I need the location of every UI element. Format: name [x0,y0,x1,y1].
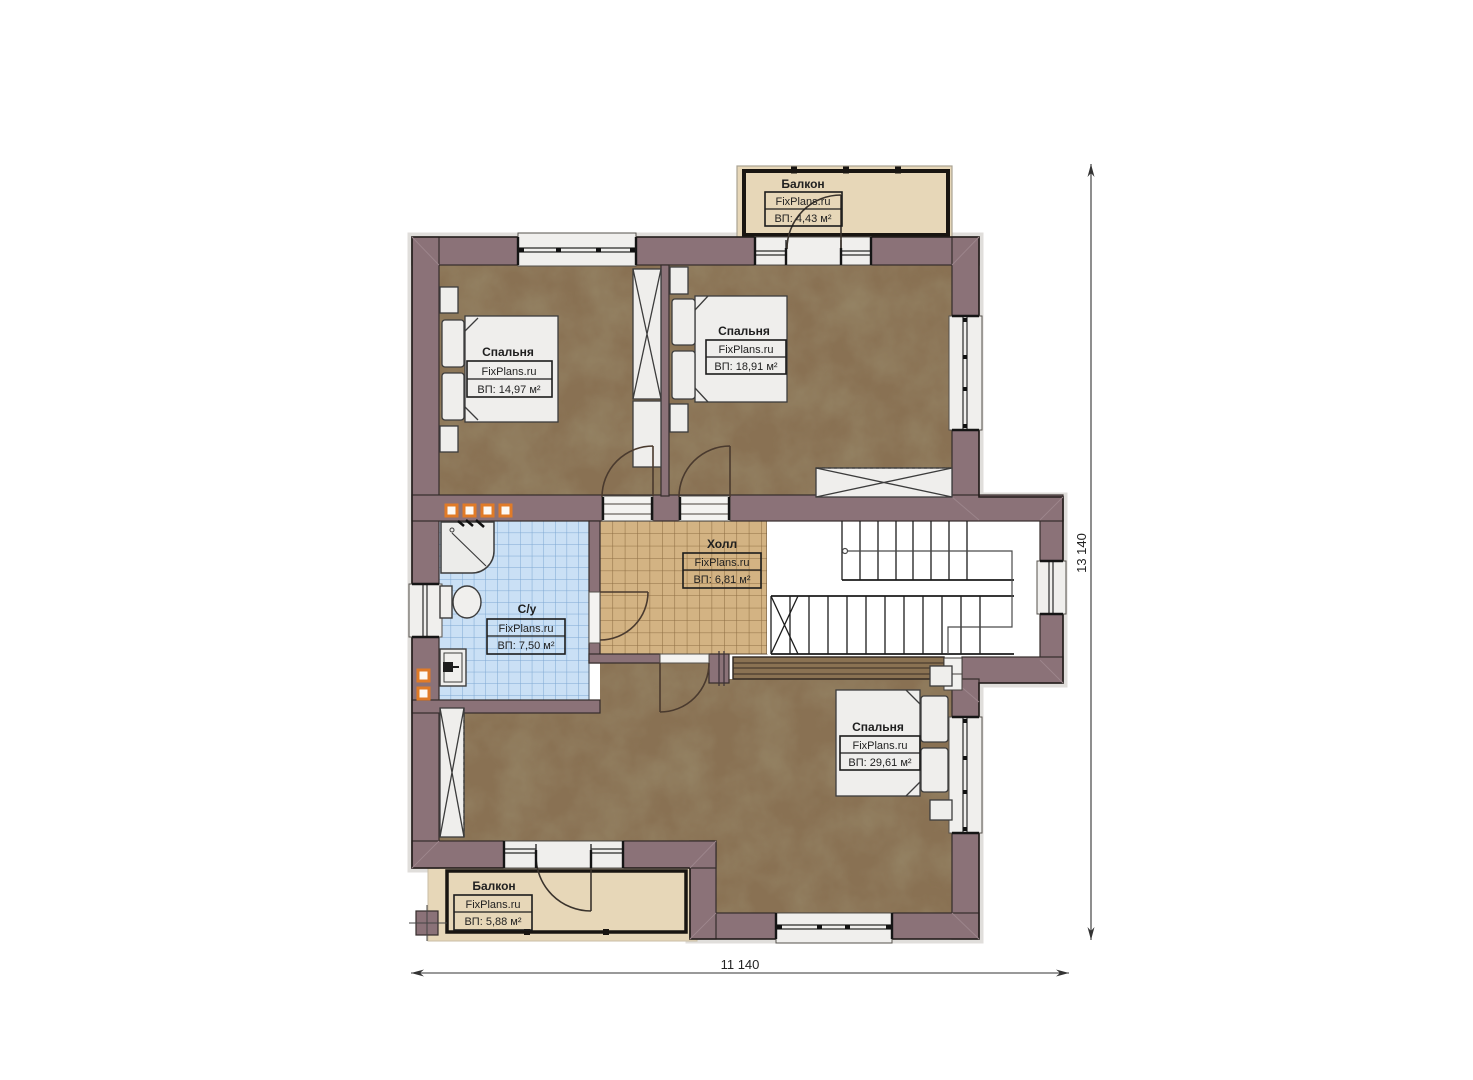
svg-text:FixPlans.ru: FixPlans.ru [498,623,553,635]
svg-text:13 140: 13 140 [1074,533,1089,573]
svg-text:ВП: 4,43 м²: ВП: 4,43 м² [774,213,831,225]
svg-text:Спальня: Спальня [718,324,770,338]
svg-text:FixPlans.ru: FixPlans.ru [694,557,749,569]
svg-text:Спальня: Спальня [482,345,534,359]
svg-text:FixPlans.ru: FixPlans.ru [718,344,773,356]
svg-text:Балкон: Балкон [472,879,515,893]
svg-text:FixPlans.ru: FixPlans.ru [775,196,830,208]
svg-text:ВП: 14,97 м²: ВП: 14,97 м² [477,384,541,396]
svg-text:ВП: 29,61 м²: ВП: 29,61 м² [848,757,912,769]
svg-text:FixPlans.ru: FixPlans.ru [481,366,536,378]
svg-text:FixPlans.ru: FixPlans.ru [465,899,520,911]
svg-text:ВП: 6,81 м²: ВП: 6,81 м² [693,574,750,586]
svg-text:С/у: С/у [518,602,537,616]
svg-text:Спальня: Спальня [852,720,904,734]
svg-text:Балкон: Балкон [781,177,824,191]
svg-text:Холл: Холл [707,537,737,551]
svg-text:FixPlans.ru: FixPlans.ru [852,740,907,752]
svg-text:ВП: 18,91 м²: ВП: 18,91 м² [714,361,778,373]
svg-text:11 140: 11 140 [721,957,760,972]
svg-text:ВП: 7,50 м²: ВП: 7,50 м² [497,640,554,652]
svg-text:ВП: 5,88 м²: ВП: 5,88 м² [464,916,521,928]
